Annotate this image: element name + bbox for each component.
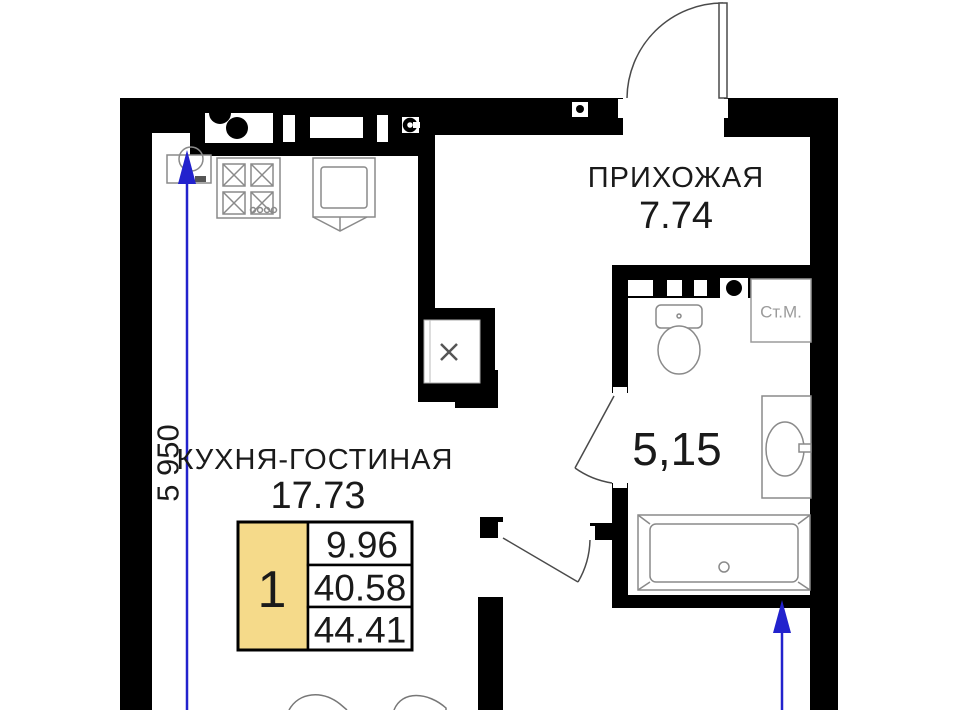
entry-door-tick-right (724, 99, 728, 118)
room-door-tick-left (498, 522, 503, 538)
bathtub-icon (638, 515, 810, 590)
hallway-area: 7.74 (639, 195, 713, 237)
stove-icon (217, 158, 280, 218)
bathroom-wall-left-upper (612, 265, 628, 393)
table-value-1: 9.96 (326, 525, 398, 566)
bathroom-door-leaf (575, 396, 614, 468)
room-door-leaf (503, 538, 578, 582)
room-door-swing-arc (578, 540, 590, 582)
floor-plan-drawing: Ст.М. 5 950 ПРИХОЖАЯ 7.74 (0, 0, 960, 710)
rooms-count-value: 1 (258, 561, 287, 619)
vent-shaft-icon (424, 320, 480, 383)
bath-door-tick-top (613, 387, 627, 393)
counter-sink-basin-icon (226, 117, 248, 139)
toilet-icon (656, 305, 702, 374)
table-value-2: 40.58 (314, 568, 407, 609)
bath-shelf-cutout-1 (628, 280, 653, 296)
wall-top-left (120, 98, 623, 135)
bathroom-wall-left-lower (612, 483, 628, 608)
summary-table: 1 9.96 40.58 44.41 (238, 522, 412, 651)
floor-plan-page: Ст.М. 5 950 ПРИХОЖАЯ 7.74 (0, 0, 960, 710)
bed-pillows-icon (289, 695, 446, 710)
entry-bell-dot-icon (576, 105, 584, 113)
hallway-name: ПРИХОЖАЯ (588, 162, 764, 194)
entry-door-tick-left (618, 99, 623, 118)
counter-divider-cutout-2 (377, 115, 388, 142)
dimension-bottom-right (773, 600, 791, 710)
washing-machine-icon: Ст.М. (751, 279, 811, 342)
room-door-tick-right (590, 526, 595, 540)
counter-cabinet-cutout (310, 117, 363, 138)
wall-vent-partition (418, 135, 435, 310)
washing-machine-label: Ст.М. (760, 303, 802, 322)
bathroom-sink-icon (762, 396, 811, 498)
entry-door-leaf (719, 3, 727, 98)
wall-top-right (724, 98, 838, 137)
bathroom-door-swing-arc (575, 468, 612, 483)
kitchen-living-name: КУХНЯ-ГОСТИНАЯ (177, 444, 454, 476)
bath-door-tick-bottom (613, 483, 627, 488)
bathroom-area: 5,15 (632, 423, 722, 475)
entry-door-swing-arc (627, 3, 723, 98)
wall-right (810, 133, 838, 710)
wall-living-room (478, 597, 503, 710)
bath-shelf-cutout-2 (667, 280, 682, 296)
bathroom-wall-top-outer (612, 265, 812, 279)
bath-shelf-cutout-3 (694, 280, 707, 296)
counter-notch (152, 133, 190, 156)
kitchen-living-area: 17.73 (270, 475, 365, 517)
tv-icon (313, 158, 375, 231)
wall-left (120, 98, 152, 710)
counter-divider-cutout (283, 115, 295, 142)
bathroom-wall-bottom (613, 595, 838, 608)
dimension-left: 5 950 (151, 150, 197, 710)
table-value-3: 44.41 (314, 610, 407, 651)
bath-drain-dot-icon (726, 280, 742, 296)
counter-hob-gap (413, 122, 420, 128)
